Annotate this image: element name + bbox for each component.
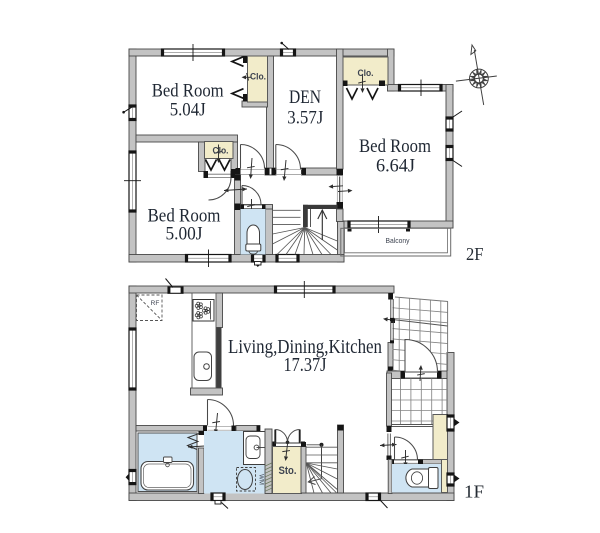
svg-text:1F: 1F (464, 481, 484, 501)
svg-text:3.57J: 3.57J (287, 108, 323, 129)
svg-text:Bed Room: Bed Room (152, 81, 224, 102)
svg-text:WM: WM (258, 474, 264, 485)
svg-text:5.00J: 5.00J (166, 224, 203, 245)
svg-text:Bed Room: Bed Room (359, 136, 431, 157)
svg-text:Clo.: Clo. (250, 72, 266, 82)
svg-text:6.64J: 6.64J (376, 156, 415, 177)
svg-text:Sto.: Sto. (279, 465, 297, 477)
svg-text:DEN: DEN (289, 87, 321, 108)
svg-text:Clo.: Clo. (213, 145, 229, 155)
svg-text:5.04J: 5.04J (170, 100, 206, 121)
svg-text:2F: 2F (466, 244, 484, 264)
svg-text:17.37J: 17.37J (284, 355, 327, 376)
svg-text:Balcony: Balcony (386, 236, 410, 245)
svg-text:RF: RF (151, 300, 160, 307)
svg-text:Clo.: Clo. (358, 68, 374, 78)
